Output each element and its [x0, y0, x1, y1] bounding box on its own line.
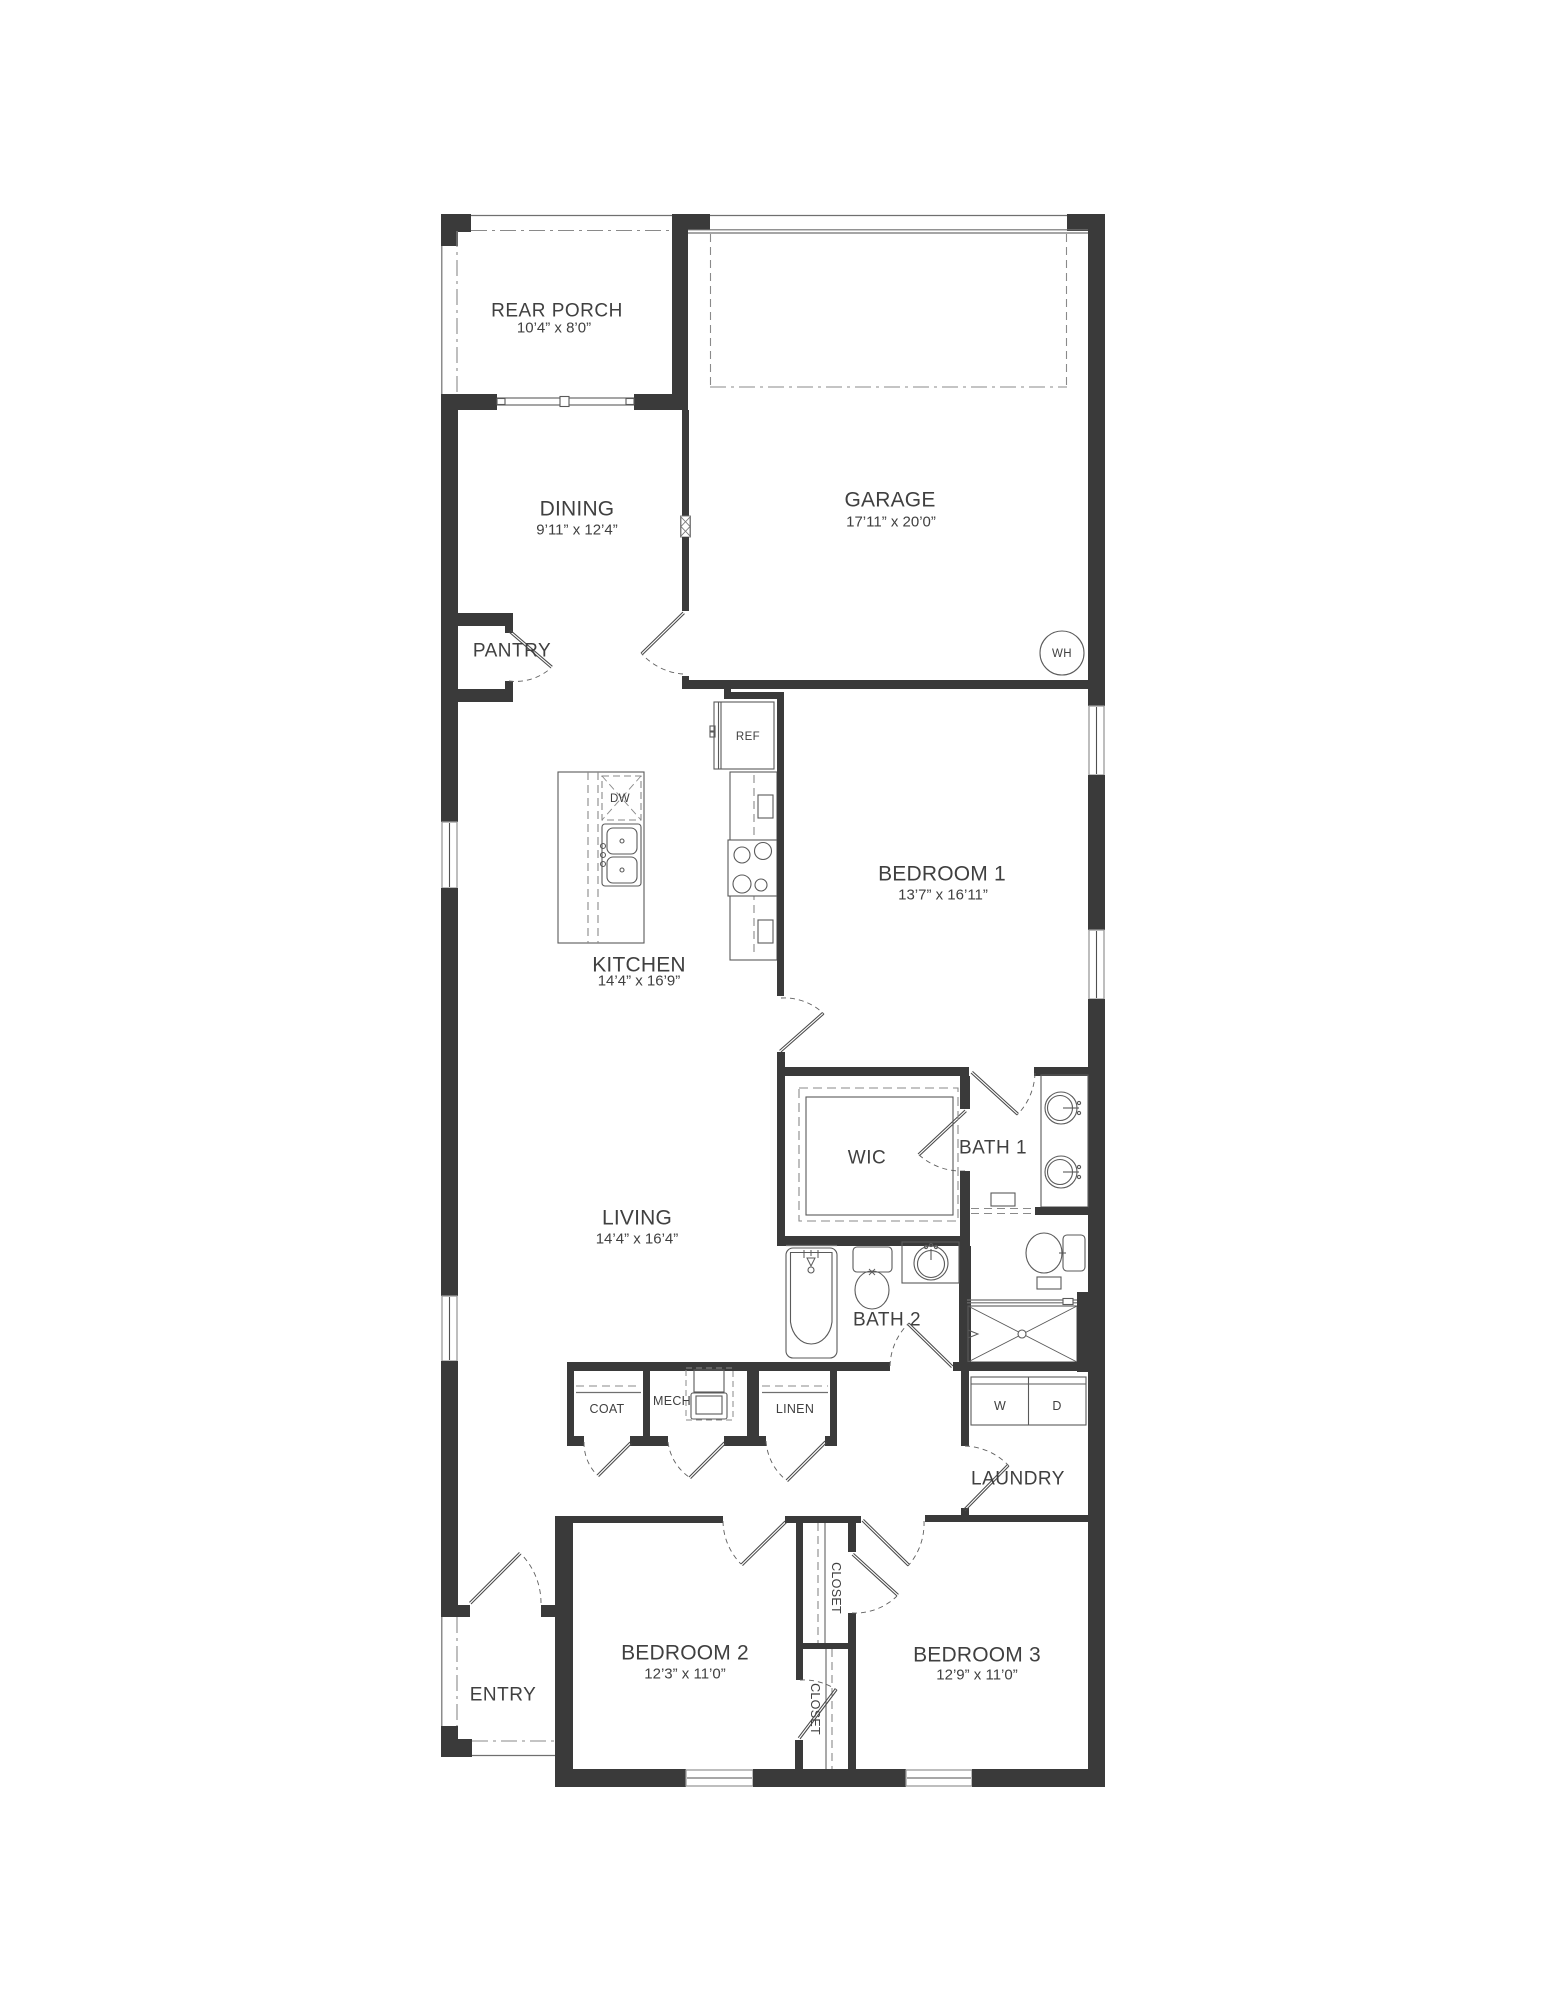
- svg-text:REAR PORCH: REAR PORCH: [491, 301, 623, 322]
- svg-text:LIVING: LIVING: [602, 1207, 672, 1230]
- svg-text:DW: DW: [610, 793, 630, 805]
- svg-text:13’7” x 16’11”: 13’7” x 16’11”: [898, 887, 988, 904]
- svg-text:COAT: COAT: [590, 1402, 625, 1416]
- svg-text:WIC: WIC: [848, 1148, 886, 1169]
- svg-text:14’4” x 16’9”: 14’4” x 16’9”: [598, 973, 681, 990]
- svg-text:BEDROOM 1: BEDROOM 1: [878, 863, 1006, 886]
- svg-text:9’11” x 12’4”: 9’11” x 12’4”: [536, 522, 617, 539]
- svg-text:BEDROOM 2: BEDROOM 2: [621, 1642, 749, 1665]
- svg-text:LAUNDRY: LAUNDRY: [971, 1469, 1065, 1490]
- svg-text:PANTRY: PANTRY: [473, 641, 551, 662]
- svg-text:12’9” x 11’0”: 12’9” x 11’0”: [936, 1667, 1017, 1684]
- svg-text:MECH: MECH: [653, 1394, 691, 1408]
- svg-text:LINEN: LINEN: [776, 1402, 814, 1416]
- svg-text:12’3” x 11’0”: 12’3” x 11’0”: [644, 1666, 725, 1683]
- svg-text:WH: WH: [1052, 648, 1072, 660]
- svg-text:10’4” x 8’0”: 10’4” x 8’0”: [517, 320, 591, 337]
- svg-text:14’4” x 16’4”: 14’4” x 16’4”: [596, 1231, 679, 1248]
- svg-text:GARAGE: GARAGE: [844, 489, 935, 512]
- svg-text:17’11” x 20’0”: 17’11” x 20’0”: [846, 514, 936, 531]
- svg-text:CLOSET: CLOSET: [829, 1562, 843, 1614]
- svg-text:W: W: [994, 1399, 1006, 1413]
- svg-text:BATH 1: BATH 1: [959, 1138, 1027, 1159]
- svg-text:ENTRY: ENTRY: [470, 1685, 537, 1706]
- svg-text:D: D: [1052, 1399, 1061, 1413]
- svg-text:REF: REF: [736, 731, 760, 743]
- svg-text:DINING: DINING: [540, 498, 615, 521]
- svg-text:BEDROOM 3: BEDROOM 3: [913, 1644, 1041, 1667]
